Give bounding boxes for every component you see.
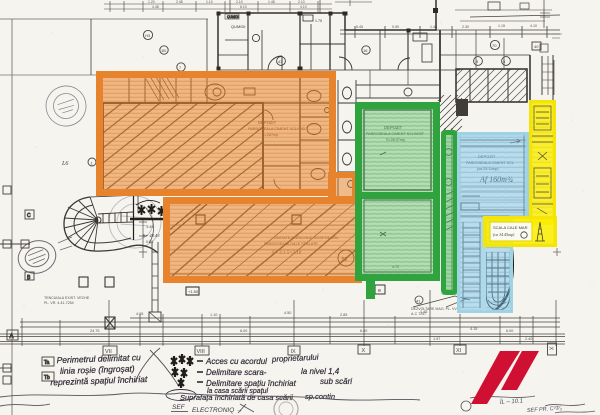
svg-text:4.10: 4.10 [530, 24, 537, 28]
svg-text:PL. VR. 4.41-7254: PL. VR. 4.41-7254 [44, 301, 74, 305]
svg-text:Acces cu acordul: Acces cu acordul [205, 357, 267, 366]
svg-text:6.00: 6.00 [506, 329, 513, 333]
svg-text:VIII: VIII [197, 349, 206, 355]
svg-text:4.05: 4.05 [136, 312, 143, 316]
svg-text:XI: XI [456, 348, 462, 354]
svg-text:A: A [10, 334, 14, 340]
svg-text:0.90: 0.90 [392, 25, 399, 29]
svg-text:Tb: Tb [44, 375, 50, 381]
svg-text:DEZVOLTARE MAG. PL. VV.: DEZVOLTARE MAG. PL. VV. [411, 307, 457, 311]
svg-text:2.85: 2.85 [340, 313, 347, 317]
svg-text:1.97: 1.97 [433, 337, 440, 341]
svg-text:+1.50: +1.50 [188, 289, 199, 294]
svg-text:1.45: 1.45 [420, 310, 427, 314]
svg-text:70: 70 [492, 43, 497, 48]
svg-text:(ca 34.45mp): (ca 34.45mp) [493, 232, 515, 237]
svg-text:TENCUIALA EXIST. VECHE: TENCUIALA EXIST. VECHE [44, 296, 90, 300]
svg-text:X: X [362, 348, 366, 354]
svg-text:4.50: 4.50 [284, 311, 291, 315]
svg-text:la nivel 1,4: la nivel 1,4 [301, 367, 340, 376]
svg-text:QUMIDI: QUMIDI [227, 15, 239, 19]
svg-text:S= 48.43: S= 48.43 [143, 233, 160, 238]
svg-text:1.10: 1.10 [206, 0, 213, 4]
svg-text:6.00: 6.00 [240, 329, 247, 333]
svg-text:SCALA CALE MAR: SCALA CALE MAR [493, 225, 528, 230]
svg-text:2.10: 2.10 [236, 0, 243, 4]
svg-text:sub scări: sub scări [320, 377, 352, 386]
svg-text:41: 41 [416, 299, 421, 304]
svg-text:4.15: 4.15 [470, 327, 477, 331]
svg-text:Ta: Ta [44, 360, 50, 366]
svg-text:1.75: 1.75 [315, 19, 322, 23]
svg-text:1.20: 1.20 [148, 0, 155, 4]
svg-text:2.10: 2.10 [298, 0, 305, 4]
svg-text:1.10: 1.10 [210, 313, 217, 317]
svg-text:1.48: 1.48 [268, 0, 275, 4]
svg-text:1.45: 1.45 [146, 225, 153, 229]
svg-text:6.00: 6.00 [360, 329, 367, 333]
svg-text:24.75: 24.75 [90, 329, 100, 333]
svg-text:43: 43 [278, 59, 283, 64]
svg-text:4.48: 4.48 [152, 5, 159, 9]
svg-text:2.48: 2.48 [176, 0, 183, 4]
svg-text:Delimitare spațiu închiriat: Delimitare spațiu închiriat [206, 379, 297, 388]
svg-text:C: C [27, 213, 31, 219]
svg-text:2.40: 2.40 [525, 337, 532, 341]
svg-text:2.30: 2.30 [462, 25, 469, 29]
svg-text:4.10: 4.10 [300, 5, 307, 9]
svg-text:16: 16 [363, 48, 368, 53]
svg-text:6.10: 6.10 [240, 5, 247, 9]
svg-text:40: 40 [534, 44, 539, 49]
svg-text:L6: L6 [61, 161, 68, 167]
svg-text:e: e [378, 288, 381, 294]
svg-text:QUMIDI: QUMIDI [231, 24, 245, 29]
svg-text:ELECTRONIQ →: ELECTRONIQ → [192, 407, 243, 414]
svg-text:1.15: 1.15 [498, 24, 505, 28]
svg-text:1B: 1B [161, 48, 166, 53]
svg-text:SEF: SEF [172, 404, 186, 411]
svg-text:H3: H3 [145, 33, 151, 38]
svg-text:sp.contin: sp.contin [305, 392, 335, 401]
svg-text:X: X [548, 347, 554, 351]
svg-text:5.45: 5.45 [356, 25, 363, 29]
svg-text:Delimitare scara-: Delimitare scara- [206, 368, 267, 377]
